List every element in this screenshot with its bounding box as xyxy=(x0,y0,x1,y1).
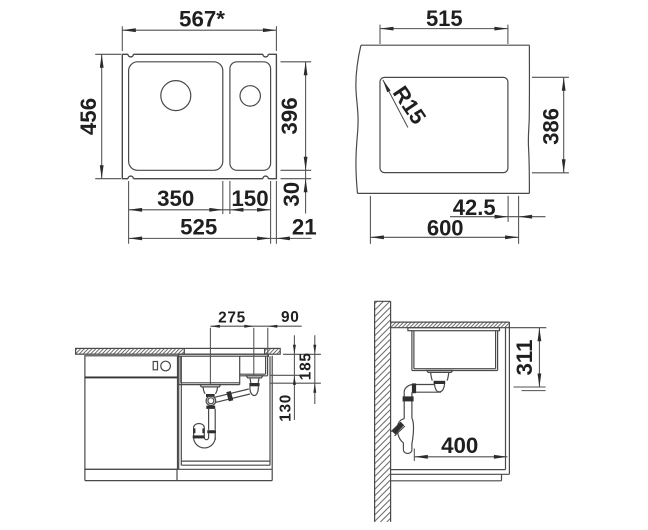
svg-text:21: 21 xyxy=(292,215,317,240)
svg-text:275: 275 xyxy=(218,309,246,326)
svg-text:400: 400 xyxy=(441,433,478,458)
svg-text:600: 600 xyxy=(427,216,464,241)
svg-text:386: 386 xyxy=(538,108,563,145)
svg-text:396: 396 xyxy=(277,97,302,134)
svg-text:185: 185 xyxy=(298,352,315,380)
svg-text:350: 350 xyxy=(157,186,194,211)
svg-text:456: 456 xyxy=(76,98,101,135)
svg-text:525: 525 xyxy=(180,215,217,240)
svg-text:311: 311 xyxy=(512,340,537,376)
svg-text:150: 150 xyxy=(231,186,268,211)
svg-text:515: 515 xyxy=(426,6,463,31)
svg-text:90: 90 xyxy=(281,309,300,326)
svg-text:567*: 567* xyxy=(179,6,225,31)
svg-text:30: 30 xyxy=(279,182,304,207)
svg-text:130: 130 xyxy=(278,394,295,422)
